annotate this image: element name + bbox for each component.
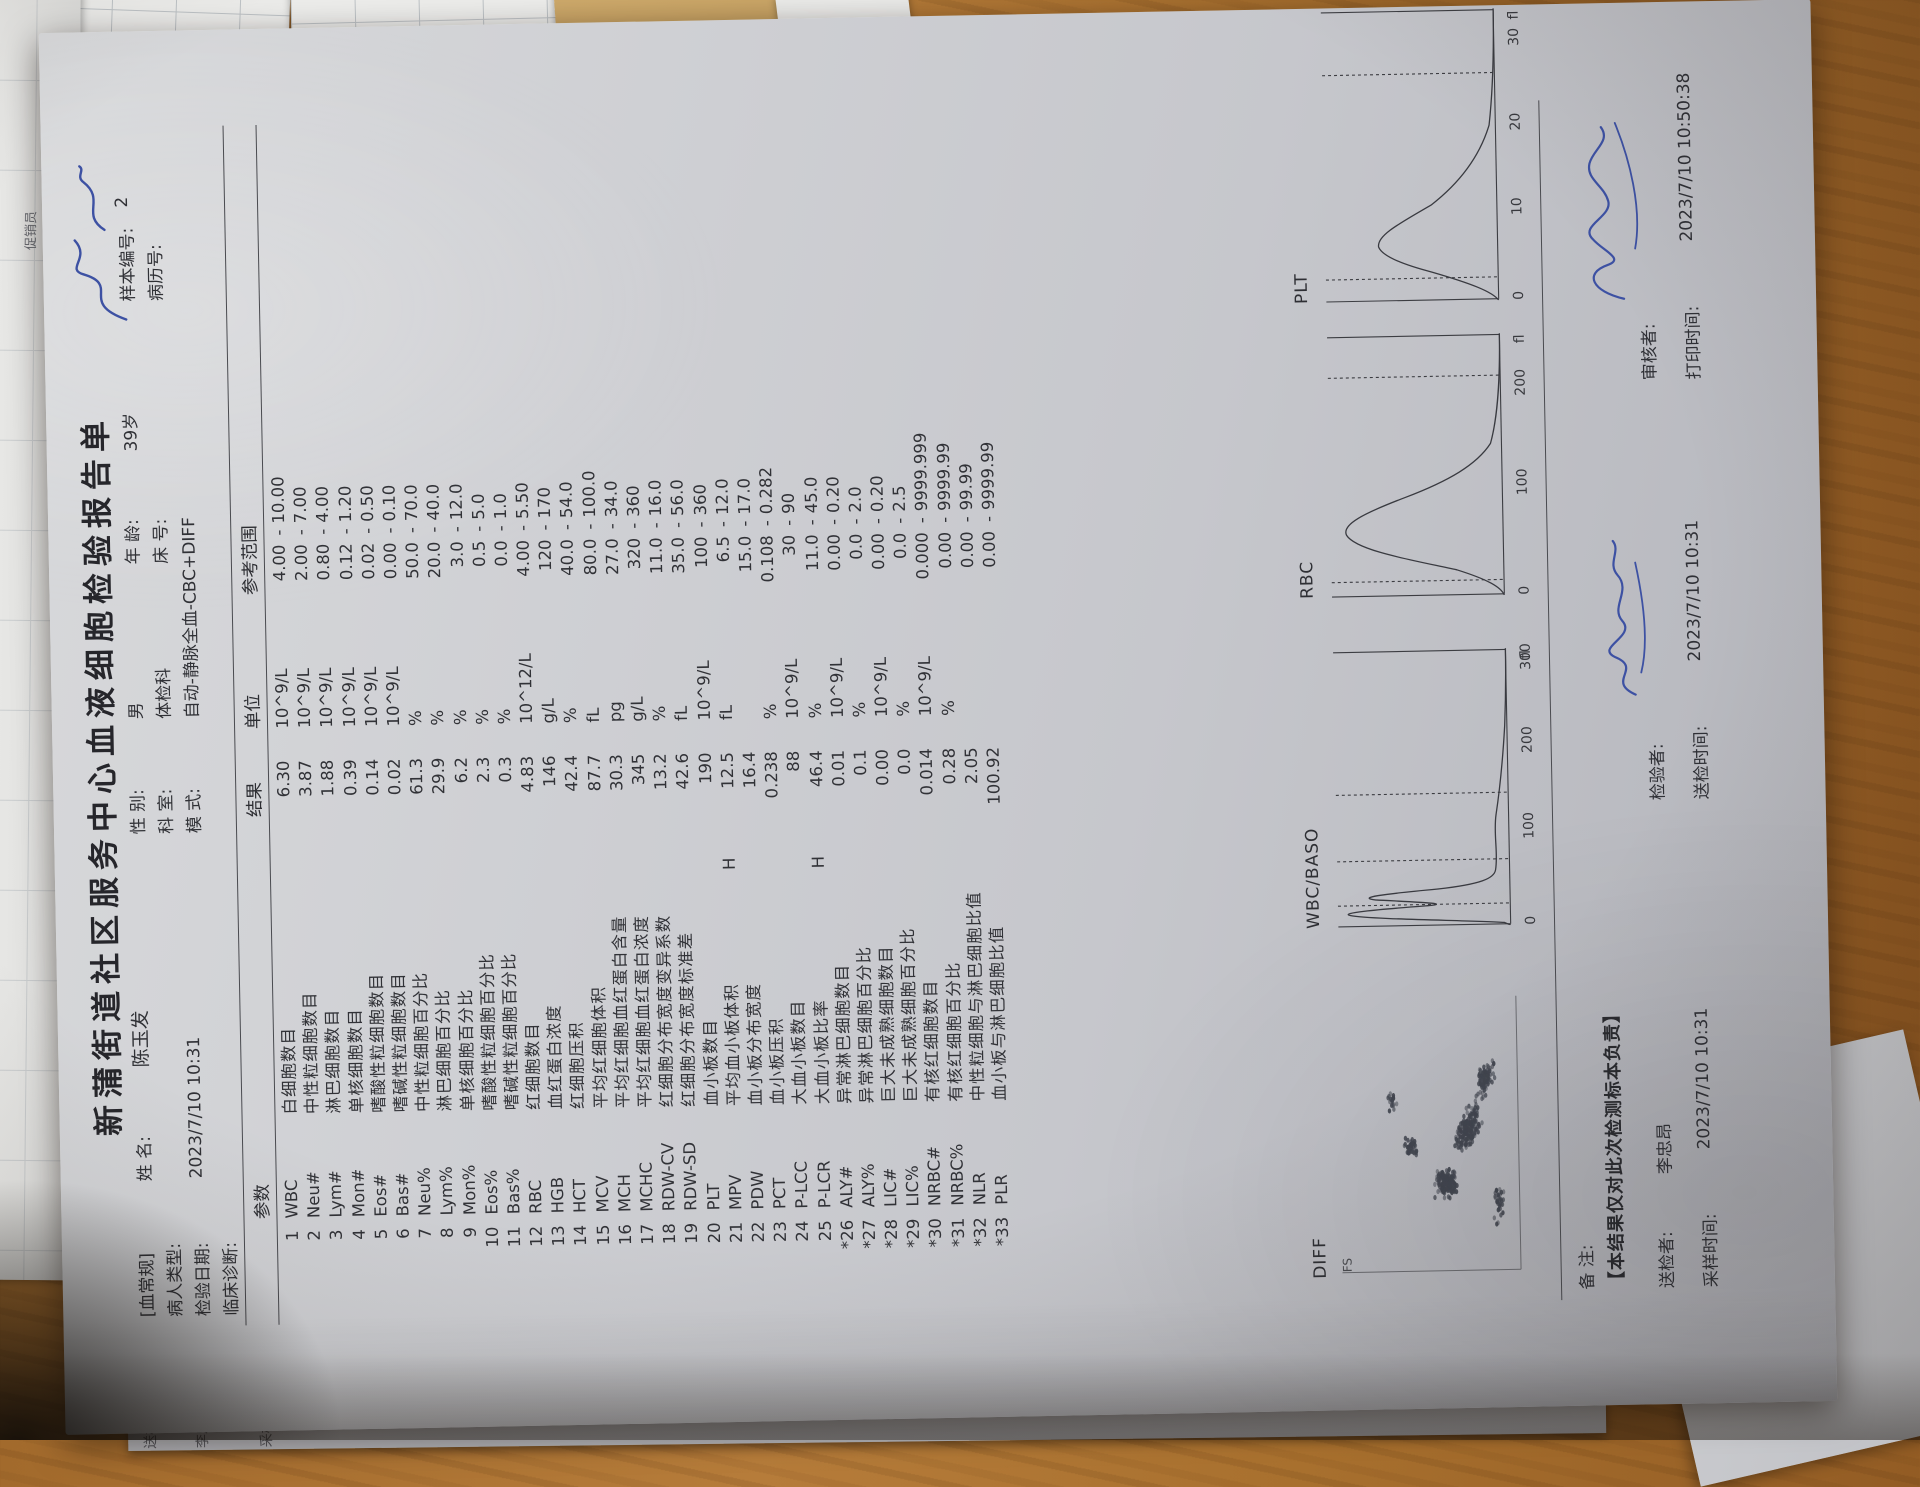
- axis-unit: fl: [1512, 334, 1528, 343]
- param-abbr: Mon#: [347, 1168, 370, 1217]
- ref-dash: -: [579, 520, 601, 532]
- ref-dash: -: [712, 518, 734, 530]
- ref-high: 9999.99: [977, 442, 1001, 511]
- ref-dash: -: [734, 517, 756, 529]
- result-value: 190: [694, 752, 718, 852]
- ref-high: 7.00: [290, 486, 313, 523]
- result-unit: 10^9/L: [382, 666, 405, 726]
- param-name: 中性粒细胞数目: [299, 991, 324, 1114]
- result-unit: %: [760, 703, 783, 719]
- print-time: 2023/7/10 10:50:38: [1674, 72, 1697, 241]
- ref-high: 1.20: [334, 485, 357, 522]
- ref-dash: -: [690, 518, 712, 530]
- ref-low: 6.5: [712, 536, 736, 642]
- ref-dash: -: [401, 524, 423, 536]
- plt-axis-ticks: 0102030fl: [1505, 8, 1531, 300]
- ref-dash: -: [557, 521, 579, 533]
- col-header-param: 参数: [249, 1184, 275, 1219]
- row-index: *33: [992, 1217, 1015, 1263]
- row-index: 9: [459, 1227, 482, 1273]
- result-flag: H: [807, 850, 830, 868]
- result-value: 0.01: [827, 750, 851, 850]
- param-abbr: HGB: [547, 1177, 570, 1214]
- ref-low: 0.0: [490, 540, 514, 646]
- result-value: 12.5: [716, 752, 740, 852]
- row-index: 17: [637, 1223, 660, 1269]
- param-abbr: PCT: [769, 1177, 792, 1209]
- ref-high: 99.99: [955, 463, 978, 511]
- result-unit: %: [804, 702, 827, 718]
- param-abbr: Bas%: [502, 1168, 525, 1214]
- ref-low: 0.0: [845, 533, 869, 639]
- row-index: *27: [859, 1219, 882, 1265]
- ref-low: 35.0: [668, 537, 692, 643]
- row-index: *28: [881, 1219, 904, 1265]
- param-abbr: PDW: [747, 1170, 770, 1209]
- result-unit: 10^9/L: [360, 667, 383, 727]
- result-unit: %: [893, 701, 916, 717]
- wbc-axis-ticks: 0100200300fl: [1518, 647, 1543, 924]
- result-unit: %: [494, 708, 517, 724]
- result-unit: pg: [604, 701, 627, 722]
- result-value: 0.3: [495, 756, 519, 856]
- diff-panel-label: DIFF: [1310, 1237, 1331, 1279]
- param-abbr: MCHC: [635, 1162, 658, 1212]
- ref-low: 2.00: [291, 544, 315, 650]
- sample-no: 2: [112, 197, 132, 208]
- ref-dash: -: [534, 521, 556, 533]
- axis-tick: 100: [1521, 812, 1538, 839]
- diagnosis-label: 临床诊断:: [216, 1242, 242, 1316]
- rbc-histogram: [1321, 333, 1514, 599]
- result-value: 6.30: [273, 760, 297, 860]
- row-index: 2: [304, 1230, 327, 1276]
- result-unit: 10^9/L: [315, 667, 338, 727]
- row-index: *30: [925, 1218, 948, 1264]
- result-value: 2.05: [960, 747, 984, 847]
- axis-tick: 30: [1506, 28, 1522, 46]
- param-abbr: WBC: [281, 1179, 304, 1218]
- sex-label: 性 别:: [123, 789, 149, 835]
- param-abbr: NRBC%: [946, 1143, 969, 1205]
- test-date: 2023/7/10 10:31: [184, 1037, 207, 1179]
- param-name: 白细胞数目: [278, 1027, 302, 1115]
- param-name: 淋巴细胞数目: [322, 1008, 346, 1113]
- ref-dash: -: [668, 519, 690, 531]
- ref-high: 54.0: [556, 481, 579, 518]
- tester-signature-ink: [1591, 530, 1652, 703]
- record-no-label: 病历号:: [141, 244, 167, 301]
- remark-label: 备 注:: [1572, 1244, 1598, 1290]
- blood-routine-tag: [血常规]: [132, 1253, 158, 1318]
- param-name: 有核红细胞数目: [920, 979, 945, 1102]
- ref-dash: -: [446, 523, 468, 535]
- result-unit: 10^9/L: [293, 668, 316, 728]
- param-abbr: LIC#: [880, 1167, 903, 1207]
- wbc-histogram: [1327, 648, 1520, 929]
- ref-high: 0.20: [866, 475, 889, 512]
- param-abbr: P-LCR: [813, 1160, 836, 1208]
- send-time: 2023/7/10 10:31: [1682, 520, 1705, 662]
- param-abbr: Eos%: [480, 1170, 503, 1215]
- disclaimer-text: 【本结果仅对此次检测标本负责】: [1598, 1004, 1629, 1289]
- ref-high: 9999.999: [910, 432, 934, 511]
- result-value: 0.014: [916, 748, 940, 848]
- row-index: 14: [570, 1225, 593, 1271]
- param-name: 中性粒细胞百分比: [410, 972, 435, 1112]
- diff-scattergram: FS: [1333, 993, 1526, 1279]
- axis-tick: 20: [1508, 112, 1524, 130]
- param-abbr: HCT: [569, 1179, 592, 1213]
- result-value: 4.83: [517, 756, 541, 856]
- param-abbr: PLR: [991, 1174, 1014, 1205]
- param-name: 血小板数目: [699, 1019, 723, 1107]
- result-value: 88: [783, 751, 807, 851]
- ref-dash: -: [490, 522, 512, 534]
- ref-low: 120: [535, 539, 559, 645]
- result-unit: fL: [582, 707, 604, 722]
- ref-dash: -: [912, 514, 934, 526]
- rbc-histogram-label: RBC: [1297, 561, 1318, 599]
- axis-tick: 0: [1517, 586, 1533, 595]
- ref-low: 100: [690, 536, 714, 642]
- param-abbr: P-LCC: [791, 1161, 814, 1209]
- department: 体检科: [149, 668, 175, 719]
- ref-low: 40.0: [557, 539, 581, 645]
- ref-high: 34.0: [600, 480, 623, 517]
- reviewer-label: 审核者:: [1635, 323, 1661, 380]
- result-unit: 10^9/L: [781, 658, 804, 718]
- row-index: *26: [836, 1220, 859, 1266]
- ref-low: 80.0: [579, 538, 603, 644]
- row-index: 20: [703, 1222, 726, 1268]
- result-value: 0.1: [849, 749, 873, 849]
- ref-low: 4.00: [513, 540, 537, 646]
- row-index: 6: [393, 1228, 416, 1274]
- result-value: 42.6: [672, 753, 696, 853]
- result-unit: %: [471, 709, 494, 725]
- sample-time-label: 采样时间:: [1696, 1213, 1722, 1287]
- ref-dash: -: [801, 516, 823, 528]
- result-unit: fL: [671, 706, 693, 721]
- ref-high: 5.50: [511, 482, 534, 519]
- ref-low: 11.0: [801, 534, 825, 640]
- row-index: 7: [415, 1228, 438, 1274]
- ref-dash: -: [424, 523, 446, 535]
- axis-tick: 100: [1514, 468, 1531, 495]
- result-value: 46.4: [805, 750, 829, 850]
- ref-high: 45.0: [800, 476, 823, 513]
- result-value: 0.14: [361, 759, 385, 859]
- diff-axis-label: FS: [1340, 1258, 1354, 1273]
- ref-low: 20.0: [424, 541, 448, 647]
- ref-low: 0.00: [868, 533, 892, 639]
- result-value: 29.9: [428, 757, 452, 857]
- rbc-axis-ticks: 0100200fl: [1512, 333, 1537, 595]
- result-value: 3.87: [295, 760, 319, 860]
- ref-low: 0.0: [890, 532, 914, 638]
- ref-dash: -: [512, 522, 534, 534]
- ref-high: 17.0: [733, 478, 756, 515]
- ref-dash: -: [468, 523, 490, 535]
- result-flag: H: [718, 852, 741, 870]
- ref-high: 170: [534, 487, 557, 519]
- row-index: 11: [504, 1226, 527, 1272]
- param-abbr: RBC: [525, 1180, 548, 1214]
- param-name: 红细胞压积: [566, 1021, 590, 1109]
- ref-low: 0.12: [335, 543, 359, 649]
- plt-histogram-label: PLT: [1292, 273, 1313, 304]
- result-unit: %: [405, 710, 428, 726]
- ref-low: 15.0: [734, 535, 758, 641]
- row-index: 18: [659, 1223, 682, 1269]
- result-unit: 10^9/L: [870, 657, 893, 717]
- param-abbr: Lym%: [436, 1166, 459, 1216]
- result-unit: 10^9/L: [826, 658, 849, 718]
- bed-label: 床 号:: [146, 519, 172, 565]
- ref-high: 9999.99: [932, 442, 956, 511]
- mode-value: 自动-静脉全血-CBC+DIFF: [174, 517, 203, 719]
- ref-dash: -: [867, 515, 889, 527]
- ref-high: 2.0: [844, 486, 867, 513]
- param-abbr: Neu#: [303, 1171, 326, 1218]
- result-value: 0.238: [761, 751, 785, 851]
- result-unit: %: [449, 709, 472, 725]
- axis-tick: 0: [1511, 291, 1527, 300]
- result-value: 87.7: [583, 754, 607, 854]
- patient-age: 39岁: [116, 413, 142, 452]
- row-index: 19: [681, 1223, 704, 1269]
- ref-dash: -: [379, 524, 401, 536]
- footer-rule: [1538, 100, 1562, 1300]
- results-table: 1WBC白细胞数目6.3010^9/L4.00-10.002Neu#中性粒细胞数…: [259, 23, 1018, 1417]
- param-name: 有核红细胞百分比: [942, 962, 967, 1102]
- row-index: *29: [903, 1218, 926, 1264]
- param-name: 血小板与淋巴细胞比值: [986, 926, 1012, 1101]
- param-abbr: ALY%: [857, 1163, 880, 1207]
- row-index: 16: [614, 1224, 637, 1270]
- row-index: *32: [969, 1217, 992, 1263]
- ref-low: 30: [779, 535, 803, 641]
- param-abbr: Eos#: [369, 1174, 392, 1217]
- result-unit: 10^9/L: [692, 660, 715, 720]
- ref-dash: -: [601, 520, 623, 532]
- row-index: 10: [481, 1226, 504, 1272]
- result-unit: %: [849, 702, 872, 718]
- sender-name: 李忠昂: [1650, 1123, 1676, 1174]
- param-name: 红细胞数目: [522, 1022, 546, 1110]
- row-index: *31: [947, 1217, 970, 1263]
- wbc-histogram-label: WBC/BASO: [1302, 827, 1324, 929]
- ref-high: 100.0: [578, 470, 601, 518]
- result-unit: 10^9/L: [271, 668, 294, 728]
- row-index: 21: [725, 1222, 748, 1268]
- result-value: 345: [628, 754, 652, 854]
- result-value: 100.92: [983, 747, 1007, 847]
- ref-low: 0.000: [912, 532, 936, 638]
- param-name: 异常淋巴细胞百分比: [853, 946, 878, 1104]
- row-index: 3: [326, 1229, 349, 1275]
- ref-dash: -: [313, 526, 335, 538]
- result-unit: fL: [715, 705, 737, 720]
- axis-tick: 200: [1512, 369, 1529, 396]
- param-name: 血小板分布宽度: [743, 983, 768, 1106]
- ref-low: 0.80: [313, 544, 337, 650]
- row-index: 12: [526, 1226, 549, 1272]
- photo-of-lab-report: { "report": { "title": "新蒲街道社区服务中心血液细胞检验…: [0, 0, 1920, 1440]
- result-value: 16.4: [739, 751, 763, 851]
- report-document-rotated: 新蒲街道社区服务中心血液细胞检验报告单 [血常规] 姓 名: 陈玉发 性 别: …: [47, 8, 1788, 1421]
- ref-high: 1.0: [489, 493, 512, 520]
- result-value: 2.3: [472, 757, 496, 857]
- result-value: 1.88: [317, 760, 341, 860]
- result-unit: %: [649, 705, 672, 721]
- ref-low: 0.02: [357, 543, 381, 649]
- diff-scatter-dots: [1386, 1058, 1506, 1229]
- ref-low: 11.0: [646, 537, 670, 643]
- ref-high: 12.0: [445, 483, 468, 520]
- ref-dash: -: [268, 526, 290, 538]
- ref-dash: -: [845, 515, 867, 527]
- param-name: 单核细胞数目: [344, 1008, 368, 1113]
- param-abbr: Lym#: [325, 1170, 348, 1218]
- param-name: 大血小板数目: [788, 1000, 812, 1105]
- ref-high: 16.0: [645, 479, 668, 516]
- patient-name: 陈玉发: [125, 1010, 153, 1068]
- send-time-label: 送检时间:: [1686, 725, 1712, 799]
- param-name: 血小板压积: [766, 1017, 790, 1105]
- plt-histogram: [1315, 8, 1509, 304]
- ref-low: 50.0: [402, 542, 426, 648]
- param-abbr: LIC%: [902, 1165, 925, 1207]
- result-value: 42.4: [561, 755, 585, 855]
- row-index: 5: [370, 1229, 393, 1275]
- param-name: 大血小板比率: [810, 999, 834, 1104]
- param-abbr: Mon%: [458, 1164, 481, 1215]
- row-index: 22: [748, 1221, 771, 1267]
- ref-high: 360: [622, 485, 645, 517]
- row-index: 25: [814, 1220, 837, 1266]
- param-abbr: MCV: [591, 1175, 614, 1212]
- result-value: 6.2: [450, 757, 474, 857]
- sample-time: 2023/7/10 10:31: [1692, 1008, 1715, 1150]
- param-abbr: Neu%: [414, 1167, 437, 1216]
- mode-label: 模 式:: [179, 788, 205, 834]
- axis-tick: 10: [1509, 197, 1525, 215]
- ref-low: 3.0: [446, 541, 470, 647]
- ref-high: 4.00: [312, 486, 335, 523]
- ref-dash: -: [889, 514, 911, 526]
- param-name: 平均血小板体积: [721, 983, 746, 1106]
- ref-low: 0.5: [468, 541, 492, 647]
- ref-high: 360: [689, 484, 712, 516]
- ref-dash: -: [934, 514, 956, 526]
- patient-type-label: 病人类型:: [160, 1243, 186, 1317]
- row-index: 13: [548, 1225, 571, 1271]
- param-name: 淋巴细胞百分比: [432, 989, 457, 1112]
- left-strip-text: 促销员: [20, 211, 39, 250]
- result-value: 0.39: [339, 759, 363, 859]
- patient-sex: 男: [122, 702, 147, 719]
- ref-dash: -: [645, 519, 667, 531]
- dept-label: 科 室:: [151, 788, 177, 834]
- result-unit: g/L: [538, 698, 561, 724]
- param-name: 巨大未成熟细胞数目: [875, 945, 900, 1103]
- axis-tick: 200: [1519, 726, 1536, 753]
- row-index: 1: [282, 1230, 305, 1276]
- param-abbr: MCH: [614, 1174, 637, 1213]
- result-value: 0.0: [894, 748, 918, 848]
- param-abbr: NLR: [969, 1172, 992, 1205]
- param-abbr: NRBC#: [924, 1146, 947, 1207]
- ref-dash: -: [978, 513, 1000, 525]
- param-name: 平均红细胞体积: [588, 986, 613, 1109]
- ref-dash: -: [778, 517, 800, 529]
- col-header-result: 结果: [241, 782, 267, 817]
- result-value: 61.3: [406, 758, 430, 858]
- ref-low: 0.108: [757, 535, 781, 641]
- result-unit: g/L: [627, 696, 650, 722]
- param-abbr: Bas#: [392, 1172, 415, 1216]
- ref-high: 5.0: [467, 493, 490, 520]
- col-header-ref: 参考范围: [236, 525, 262, 595]
- ref-high: 0.10: [378, 485, 401, 522]
- ref-low: 0.00: [956, 531, 980, 637]
- reviewer-signature-ink: [1571, 116, 1651, 309]
- axis-unit: fl: [1518, 650, 1534, 659]
- param-name: 嗜酸性粒细胞百分比: [476, 953, 501, 1111]
- ref-dash: -: [290, 526, 312, 538]
- param-name: 嗜酸性粒细胞数目: [366, 973, 391, 1113]
- row-index: 4: [348, 1229, 371, 1275]
- ref-high: 0.20: [822, 476, 845, 513]
- param-abbr: ALY#: [835, 1165, 858, 1208]
- ref-high: 70.0: [401, 484, 424, 521]
- param-name: 嗜碱性粒细胞数目: [388, 972, 413, 1112]
- test-date-label: 检验日期:: [188, 1242, 214, 1316]
- ref-low: 0.00: [379, 542, 403, 648]
- ref-low: 4.00: [269, 544, 293, 650]
- axis-unit: fl: [1506, 11, 1522, 20]
- sample-no-label: 样本编号:: [112, 228, 138, 302]
- col-header-unit: 单位: [239, 694, 265, 729]
- result-unit: 10^12/L: [515, 653, 539, 724]
- result-value: 0.00: [872, 749, 896, 849]
- ref-low: 320: [624, 538, 648, 644]
- param-abbr: RDW-SD: [679, 1142, 703, 1211]
- axis-tick: 0: [1523, 916, 1539, 925]
- param-abbr: MPV: [724, 1174, 747, 1210]
- result-value: 13.2: [650, 753, 674, 853]
- ref-high: 2.5: [889, 485, 912, 512]
- param-abbr: RDW-CV: [657, 1142, 681, 1211]
- age-label: 年 龄:: [118, 519, 144, 565]
- param-name: 血红蛋白浓度: [544, 1004, 568, 1109]
- name-label: 姓 名:: [130, 1136, 156, 1182]
- row-index: 23: [770, 1221, 793, 1267]
- ref-low: 27.0: [601, 538, 625, 644]
- ref-low: 0.00: [934, 532, 958, 638]
- sender-label: 送检者:: [1652, 1231, 1678, 1288]
- ref-high: 12.0: [711, 478, 734, 515]
- ref-high: 90: [778, 493, 801, 514]
- result-value: 30.3: [605, 754, 629, 854]
- row-index: 24: [792, 1220, 815, 1266]
- row-index: 8: [437, 1227, 460, 1273]
- result-value: 146: [539, 755, 563, 855]
- ref-dash: -: [823, 516, 845, 528]
- param-abbr: PLT: [702, 1183, 725, 1210]
